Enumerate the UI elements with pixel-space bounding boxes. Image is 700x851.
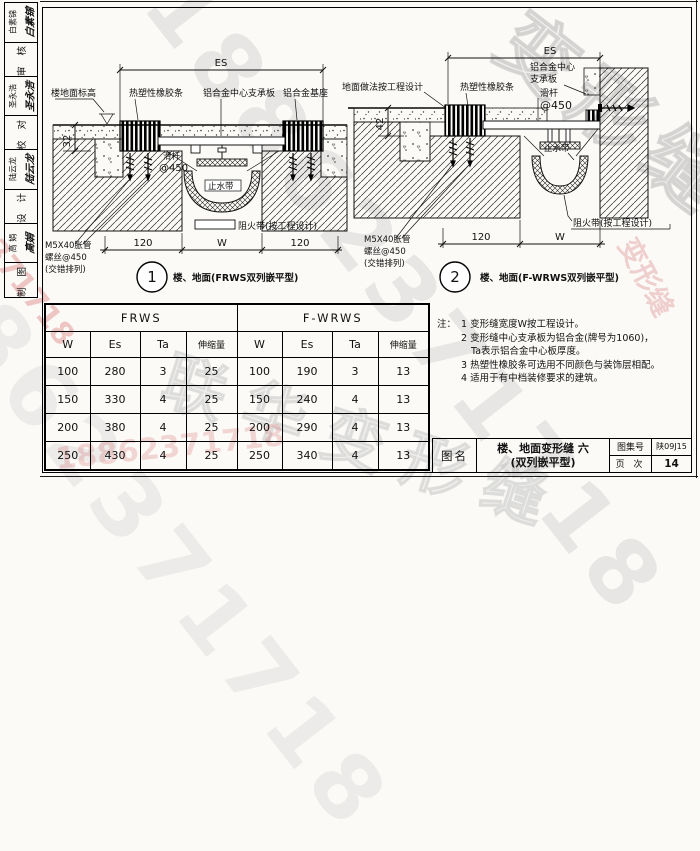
sheet-edge-bottom xyxy=(40,476,698,477)
table-row: 250430 425 250340 413 xyxy=(45,442,429,471)
detail-1-drawing: ES 楼地面标高 热塑性橡胶条 铝合金中心支承板 铝合金基座 止水带 滑杆 @4… xyxy=(45,40,355,295)
level-symbol xyxy=(99,114,115,124)
sidebar-label-draft: 制 图 xyxy=(5,263,37,297)
detail-1-caption: 楼、地面(FRWS双列嵌平型) xyxy=(173,272,298,284)
mortar-pocket-left xyxy=(95,139,123,177)
sidebar-checker-name: 圣永浩 圣永浩 xyxy=(5,77,37,117)
slide-rod-nut xyxy=(218,148,226,152)
notes-block: 注： 1 变形缝宽度W按工程设计。 2 变形缝中心支承板为铝合金(牌号为1060… xyxy=(437,318,693,386)
base-label: 铝合金基座 xyxy=(283,87,328,99)
svg-text:120: 120 xyxy=(290,238,309,249)
note-line: Ta表示铝合金中心板厚度。 xyxy=(461,345,693,359)
table-group-row: FRWS F-WRWS xyxy=(45,304,429,332)
es-dim-text: ES xyxy=(215,58,228,69)
printed-name: 圣永浩 xyxy=(5,77,21,116)
sidebar-label-design: 设 计 xyxy=(5,190,37,224)
center-plate-label-1: 铝合金中心 xyxy=(530,61,575,73)
mortar-pocket xyxy=(400,122,430,161)
printed-name: 高 娟 xyxy=(5,224,21,263)
rubber-strip-label: 热塑性橡胶条 xyxy=(129,87,183,99)
signature: 陆云龙 xyxy=(21,150,37,189)
sidebar-drafter-name: 高 娟 高娟 xyxy=(5,224,37,264)
svg-text:M5X40胀管: M5X40胀管 xyxy=(45,240,91,251)
atlas-number-label: 图集号 xyxy=(610,439,652,456)
rubber-strip-label: 热塑性橡胶条 xyxy=(460,81,514,93)
signature: 高娟 xyxy=(21,224,37,263)
svg-text:M5X40胀管: M5X40胀管 xyxy=(364,234,410,245)
detail-2-caption: 楼、地面(F-WRWS双列嵌平型) xyxy=(480,272,619,284)
note-line: 1 变形缝宽度W按工程设计。 xyxy=(461,318,693,332)
note-line: 3 热塑性橡胶条可选用不同颜色与装饰层相配。 xyxy=(461,359,693,373)
wall-right xyxy=(600,68,648,218)
detail2-es-dimension: ES xyxy=(445,46,603,104)
table-header-row: W Es Ta 伸缩量 W Es Ta 伸缩量 xyxy=(45,332,429,358)
slide-rod-pad xyxy=(197,159,247,166)
slide-rod-label: 滑杆 xyxy=(540,87,558,99)
note-line: 2 变形缝中心支承板为铝合金(牌号为1060)， xyxy=(461,332,693,346)
atlas-number-value: 陕09J15 xyxy=(652,439,691,456)
signature: 白素锦 xyxy=(21,3,37,42)
rubber-comb-left xyxy=(120,121,160,151)
sheet-edge-top xyxy=(40,1,698,2)
svg-text:32: 32 xyxy=(62,135,73,148)
page-number-value: 14 xyxy=(652,456,691,473)
detail-bubble-1-number: 1 xyxy=(147,268,157,286)
detail-2-drawing: ES 地面做法按工程设计 热塑性橡胶条 铝合金中心 支承板 滑杆 @450 止水… xyxy=(340,28,685,296)
svg-text:(交错排列): (交错排列) xyxy=(45,264,86,275)
wall-notch-block xyxy=(584,68,600,95)
svg-text:螺丝@450: 螺丝@450 xyxy=(45,252,87,263)
finish-band-center xyxy=(160,125,283,137)
slide-rod-spacing: @450 xyxy=(159,163,188,174)
drawing-title-line1: 楼、地面变形缝 六 xyxy=(497,442,589,456)
finish-band-center xyxy=(485,108,547,121)
printed-name: 陆云龙 xyxy=(5,150,21,189)
sidebar-reviewer-name: 白素锦 白素锦 xyxy=(5,3,37,43)
table-row: 100280 325 100190 313 xyxy=(45,358,429,386)
svg-text:(交错排列): (交错排列) xyxy=(364,258,405,269)
center-plate-label: 铝合金中心支承板 xyxy=(203,87,275,99)
signature: 圣永浩 xyxy=(21,77,37,116)
es-dim-text: ES xyxy=(544,46,557,57)
table-row: 200380 425 200290 413 xyxy=(45,414,429,442)
svg-text:W: W xyxy=(555,232,565,243)
signature-sidebar: 白素锦 白素锦 审 核 圣永浩 圣永浩 校 对 陆云龙 陆云龙 设 计 高 娟 … xyxy=(4,2,38,298)
page-number-label: 页 次 xyxy=(610,456,652,473)
drawing-sheet: { "sidebar": { "cells": [ {"name": "白素锦"… xyxy=(0,0,700,478)
drawing-title: 楼、地面变形缝 六 (双列嵌平型) xyxy=(477,439,610,472)
sidebar-label-check: 校 对 xyxy=(5,116,37,150)
floor-level-label: 楼地面标高 xyxy=(51,87,96,99)
svg-text:120: 120 xyxy=(471,232,490,243)
waterstop-u-band xyxy=(532,156,588,194)
detail1-bottom-dims: 120 W 120 xyxy=(100,233,342,254)
finish-band-left xyxy=(354,108,445,122)
note-line: 4 适用于有中档装修要求的建筑。 xyxy=(461,372,693,386)
notes-prefix: 注： xyxy=(437,318,456,332)
wall-edge-rubber xyxy=(586,110,599,121)
center-support-plate xyxy=(158,137,285,145)
rubber-comb xyxy=(445,105,485,136)
center-plate-label-2: 支承板 xyxy=(530,73,557,85)
fire-barrier-label: 阻火带(按工程设计) xyxy=(238,220,317,232)
title-block: 图名 楼、地面变形缝 六 (双列嵌平型) 图集号 陕09J15 页 次 14 xyxy=(432,438,692,473)
fire-barrier-strip xyxy=(195,220,235,229)
rubber-comb-right xyxy=(283,121,323,151)
slide-rod-label: 滑杆 xyxy=(163,151,181,162)
printed-name: 白素锦 xyxy=(5,3,21,42)
svg-text:螺丝@450: 螺丝@450 xyxy=(364,246,406,257)
detail-bubble-2-number: 2 xyxy=(450,268,460,286)
sheet-edge-right xyxy=(696,0,697,478)
center-support-plate xyxy=(483,121,600,129)
group-frws: FRWS xyxy=(45,304,237,332)
svg-text:W: W xyxy=(217,238,227,249)
sidebar-designer-name: 陆云龙 陆云龙 xyxy=(5,150,37,190)
floor-finish-label: 地面做法按工程设计 xyxy=(342,81,423,93)
fire-barrier-label: 阻火带(按工程设计) xyxy=(573,217,652,229)
table-row: 150330 425 150240 413 xyxy=(45,386,429,414)
waterstop-label: 止水带 xyxy=(544,143,570,154)
title-block-name-label: 图名 xyxy=(433,439,477,472)
drawing-title-line2: (双列嵌平型) xyxy=(510,456,575,470)
svg-text:42: 42 xyxy=(375,118,386,131)
waterstop-label: 止水带 xyxy=(208,181,234,192)
svg-text:120: 120 xyxy=(133,238,152,249)
slab-left xyxy=(354,122,520,218)
dimension-spec-table: FRWS F-WRWS W Es Ta 伸缩量 W Es Ta 伸缩量 1002… xyxy=(44,303,430,471)
group-f-wrws: F-WRWS xyxy=(237,304,429,332)
sidebar-label-review: 审 核 xyxy=(5,43,37,77)
